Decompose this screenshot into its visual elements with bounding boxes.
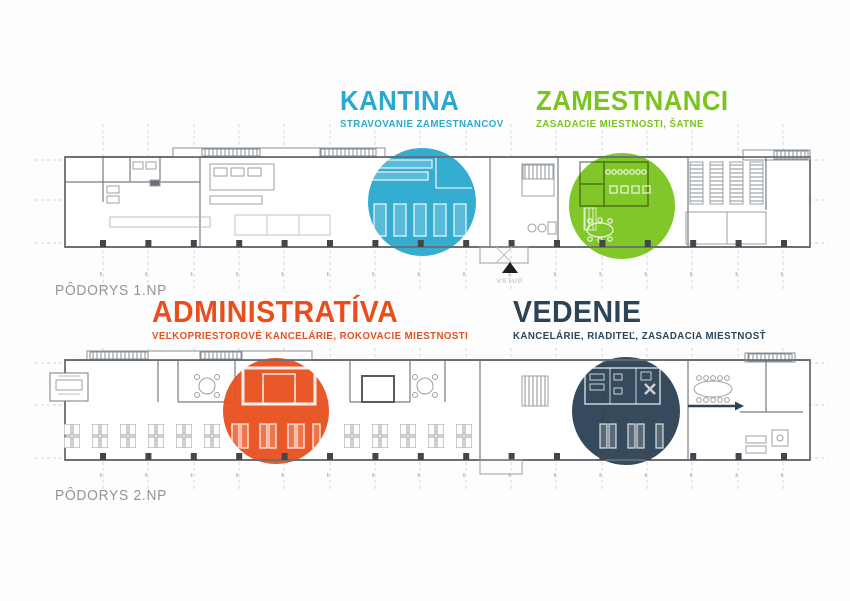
zone-subtitle-vedenie: KANCELÁRIE, RIADITEĽ, ZASADACIA MIESTNOS… [513,331,766,342]
zone-heading-kantina: KANTINA STRAVOVANIE ZAMESTNANCOV [340,87,504,130]
zone-heading-vedenie: VEDENIE KANCELÁRIE, RIADITEĽ, ZASADACIA … [513,296,766,342]
entrance-vestibule [480,247,528,263]
zone-subtitle-kantina: STRAVOVANIE ZAMESTNANCOV [340,119,504,130]
zone-heading-administrativa: ADMINISTRATÍVA VEĽKOPRIESTOROVÉ KANCELÁR… [152,296,468,342]
zone-heading-zamestnanci: ZAMESTNANCI ZASADACIE MIESTNOSTI, ŠATNE [536,87,729,130]
zone-title-administrativa: ADMINISTRATÍVA [152,296,468,327]
floor-plan-1: VSTUP [0,112,850,308]
floor-label-1np: PÔDORYS 1.NP [55,282,167,299]
zone-title-kantina: KANTINA [340,87,504,115]
poster-canvas: VSTUP [0,0,850,601]
left-annex-room [50,373,88,401]
zone-subtitle-administrativa: VEĽKOPRIESTOROVÉ KANCELÁRIE, ROKOVACIE M… [152,331,468,342]
zone-subtitle-zamestnanci: ZASADACIE MIESTNOSTI, ŠATNE [536,119,729,130]
floor-label-2np: PÔDORYS 2.NP [55,487,167,504]
entrance-label: VSTUP [497,278,524,285]
zone-title-zamestnanci: ZAMESTNANCI [536,87,729,115]
zone-title-vedenie: VEDENIE [513,296,766,327]
zone-highlight-vedenie [572,357,680,465]
entrance-arrow-icon [502,262,518,273]
entrance-vestibule-floor2 [480,460,522,474]
